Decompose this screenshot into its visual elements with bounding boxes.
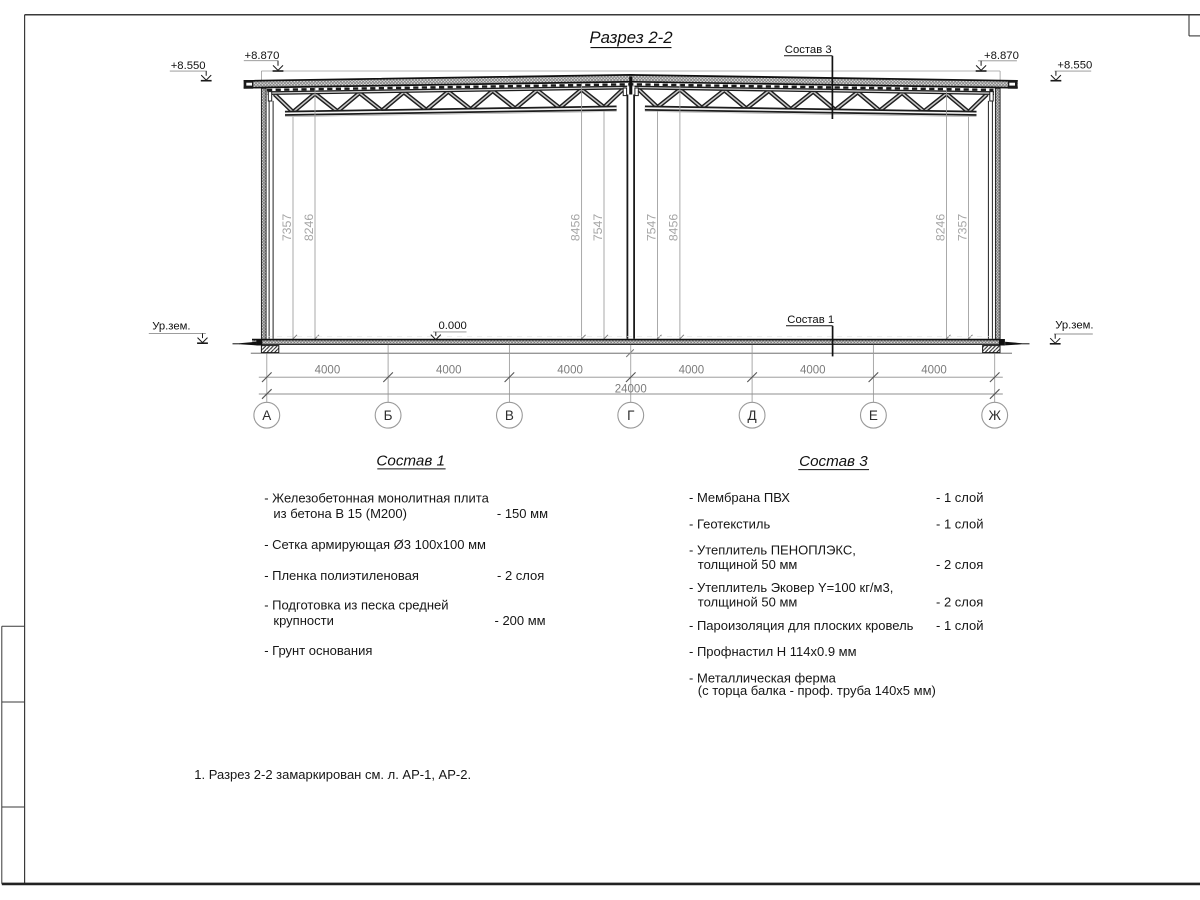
svg-text:- 150 мм: - 150 мм bbox=[497, 506, 548, 521]
svg-text:- 200 мм: - 200 мм bbox=[495, 613, 546, 628]
svg-text:- 2 слоя: - 2 слоя bbox=[936, 557, 983, 572]
svg-text:Б: Б bbox=[384, 408, 393, 423]
svg-text:Состав 3: Состав 3 bbox=[785, 44, 832, 56]
svg-text:7547: 7547 bbox=[644, 214, 658, 242]
svg-text:Разрез 2-2: Разрез 2-2 bbox=[589, 28, 673, 47]
svg-text:1. Разрез 2-2 замаркирован см.: 1. Разрез 2-2 замаркирован см. л. АР-1, … bbox=[194, 767, 471, 782]
svg-text:8456: 8456 bbox=[568, 214, 582, 242]
svg-text:4000: 4000 bbox=[800, 365, 826, 377]
svg-text:Состав 1: Состав 1 bbox=[787, 314, 834, 326]
svg-text:+8.550: +8.550 bbox=[171, 60, 206, 72]
svg-text:- Пароизоляция для плоских кро: - Пароизоляция для плоских кровель bbox=[689, 618, 914, 633]
svg-text:Ур.зем.: Ур.зем. bbox=[1055, 319, 1093, 331]
svg-text:7357: 7357 bbox=[955, 214, 969, 242]
svg-text:Ур.зем.: Ур.зем. bbox=[152, 320, 190, 332]
svg-text:толщиной 50 мм: толщиной 50 мм bbox=[698, 594, 798, 609]
svg-text:- Геотекстиль: - Геотекстиль bbox=[689, 517, 770, 532]
svg-text:(с торца балка - проф. труба 1: (с торца балка - проф. труба 140х5 мм) bbox=[698, 683, 936, 698]
svg-text:4000: 4000 bbox=[557, 365, 583, 377]
svg-text:толщиной 50 мм: толщиной 50 мм bbox=[698, 557, 798, 572]
svg-text:крупности: крупности bbox=[273, 613, 333, 628]
svg-text:- Железобетонная монолитная п: - Железобетонная монолитная плита bbox=[264, 491, 489, 506]
svg-text:4000: 4000 bbox=[921, 365, 947, 377]
svg-text:- 2 слоя: - 2 слоя bbox=[497, 568, 544, 583]
svg-text:А: А bbox=[262, 408, 271, 423]
svg-text:24000: 24000 bbox=[615, 384, 647, 396]
svg-text:Е: Е bbox=[869, 408, 878, 423]
svg-text:8456: 8456 bbox=[667, 214, 681, 242]
svg-text:В: В bbox=[505, 408, 514, 423]
svg-text:Д: Д bbox=[748, 408, 757, 423]
svg-text:- Утеплитель ПЕНОПЛЭКС,: - Утеплитель ПЕНОПЛЭКС, bbox=[689, 543, 856, 558]
svg-text:- 1 слой: - 1 слой bbox=[936, 490, 984, 505]
svg-text:Г: Г bbox=[627, 408, 635, 423]
svg-text:7357: 7357 bbox=[280, 214, 294, 242]
svg-text:- 1 слой: - 1 слой bbox=[936, 618, 984, 633]
svg-text:- 2 слоя: - 2 слоя bbox=[936, 594, 983, 609]
svg-text:+8.870: +8.870 bbox=[984, 50, 1019, 62]
svg-text:- Мембрана ПВХ: - Мембрана ПВХ bbox=[689, 490, 790, 505]
svg-text:4000: 4000 bbox=[436, 365, 462, 377]
svg-text:Ж: Ж bbox=[988, 408, 1001, 423]
svg-text:+8.550: +8.550 bbox=[1057, 59, 1092, 71]
svg-text:- Утеплитель Эковер Y=100 кг/м: - Утеплитель Эковер Y=100 кг/м3, bbox=[689, 580, 893, 595]
svg-text:+8.870: +8.870 bbox=[245, 50, 280, 62]
svg-text:4000: 4000 bbox=[679, 365, 705, 377]
svg-text:8246: 8246 bbox=[933, 214, 947, 242]
svg-text:- Подготовка из песка средней: - Подготовка из песка средней bbox=[264, 598, 448, 613]
svg-text:- Грунт основания: - Грунт основания bbox=[264, 643, 372, 658]
svg-text:4000: 4000 bbox=[315, 365, 341, 377]
svg-text:из бетона В 15 (М200): из бетона В 15 (М200) bbox=[273, 506, 407, 521]
svg-text:- Пленка полиэтиленовая: - Пленка полиэтиленовая bbox=[264, 568, 419, 583]
svg-text:0.000: 0.000 bbox=[439, 320, 467, 332]
svg-text:Состав 1: Состав 1 bbox=[376, 453, 445, 470]
svg-text:Состав 3: Состав 3 bbox=[799, 453, 868, 470]
svg-text:- Сетка армирующая Ø3 100х100: - Сетка армирующая Ø3 100х100 мм bbox=[264, 537, 486, 552]
svg-text:- Профнастил Н 114х0.9 мм: - Профнастил Н 114х0.9 мм bbox=[689, 644, 857, 659]
svg-text:8246: 8246 bbox=[302, 214, 316, 242]
svg-text:- 1 слой: - 1 слой bbox=[936, 517, 984, 532]
svg-text:7547: 7547 bbox=[591, 214, 605, 242]
